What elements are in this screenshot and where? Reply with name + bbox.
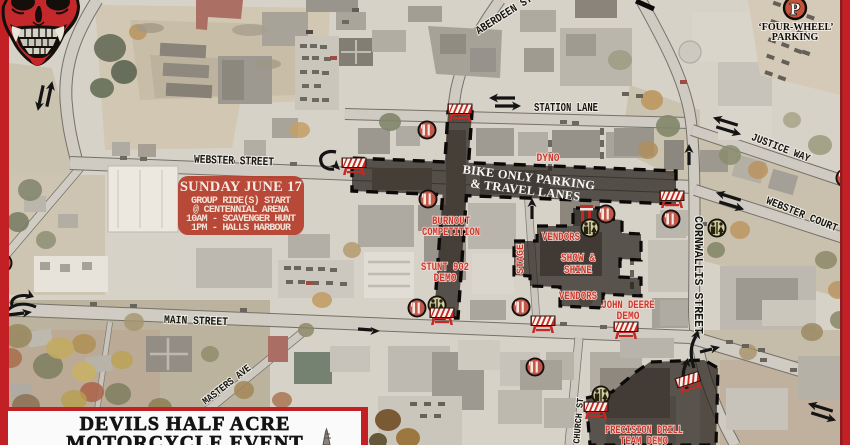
svg-text:STATION LANE: STATION LANE [534, 101, 598, 115]
svg-text:SHOW &: SHOW & [561, 253, 595, 265]
svg-text:PARKING: PARKING [772, 32, 819, 43]
svg-text:TEAM DEMO: TEAM DEMO [620, 436, 668, 445]
svg-text:SUNDAY JUNE 17: SUNDAY JUNE 17 [180, 179, 302, 195]
svg-text:MOTORCYCLE EVENT: MOTORCYCLE EVENT [66, 432, 303, 445]
svg-text:WEBSTER STREET: WEBSTER STREET [194, 153, 274, 170]
svg-text:DYNO: DYNO [537, 153, 560, 165]
svg-text:DEMO: DEMO [434, 273, 457, 285]
svg-text:1PM - HALLS HARBOUR: 1PM - HALLS HARBOUR [191, 223, 291, 234]
svg-text:COMPETITION: COMPETITION [422, 227, 480, 239]
svg-text:P: P [790, 0, 800, 19]
svg-text:MAIN STREET: MAIN STREET [164, 314, 228, 329]
svg-text:VENDORS: VENDORS [559, 291, 597, 303]
svg-text:DEMO: DEMO [617, 311, 640, 323]
svg-text:VENDORS: VENDORS [542, 232, 580, 244]
svg-text:CORNWALLIS STREET: CORNWALLIS STREET [691, 216, 704, 334]
svg-text:SHINE: SHINE [564, 265, 592, 277]
svg-text:STAGE: STAGE [515, 244, 527, 274]
